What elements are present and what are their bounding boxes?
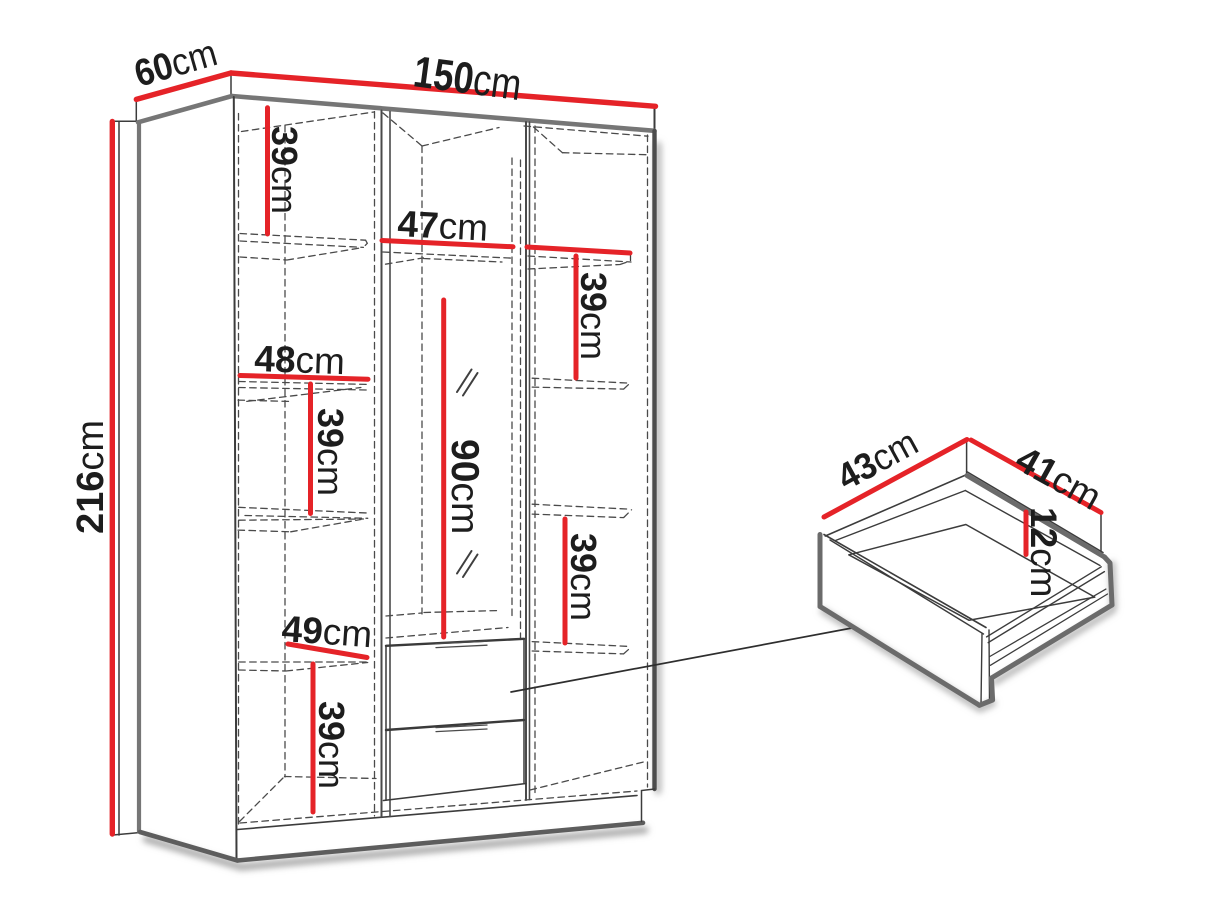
svg-text:49cm: 49cm <box>280 608 373 655</box>
svg-text:39cm: 39cm <box>563 533 604 621</box>
svg-text:12cm: 12cm <box>1023 507 1064 597</box>
svg-text:39cm: 39cm <box>310 408 351 496</box>
svg-text:39cm: 39cm <box>264 126 305 214</box>
svg-text:39cm: 39cm <box>311 701 352 789</box>
svg-text:47cm: 47cm <box>397 203 490 249</box>
svg-text:90cm: 90cm <box>443 439 486 534</box>
svg-text:216cm: 216cm <box>70 420 112 534</box>
svg-text:39cm: 39cm <box>573 272 614 360</box>
svg-text:48cm: 48cm <box>254 338 346 382</box>
